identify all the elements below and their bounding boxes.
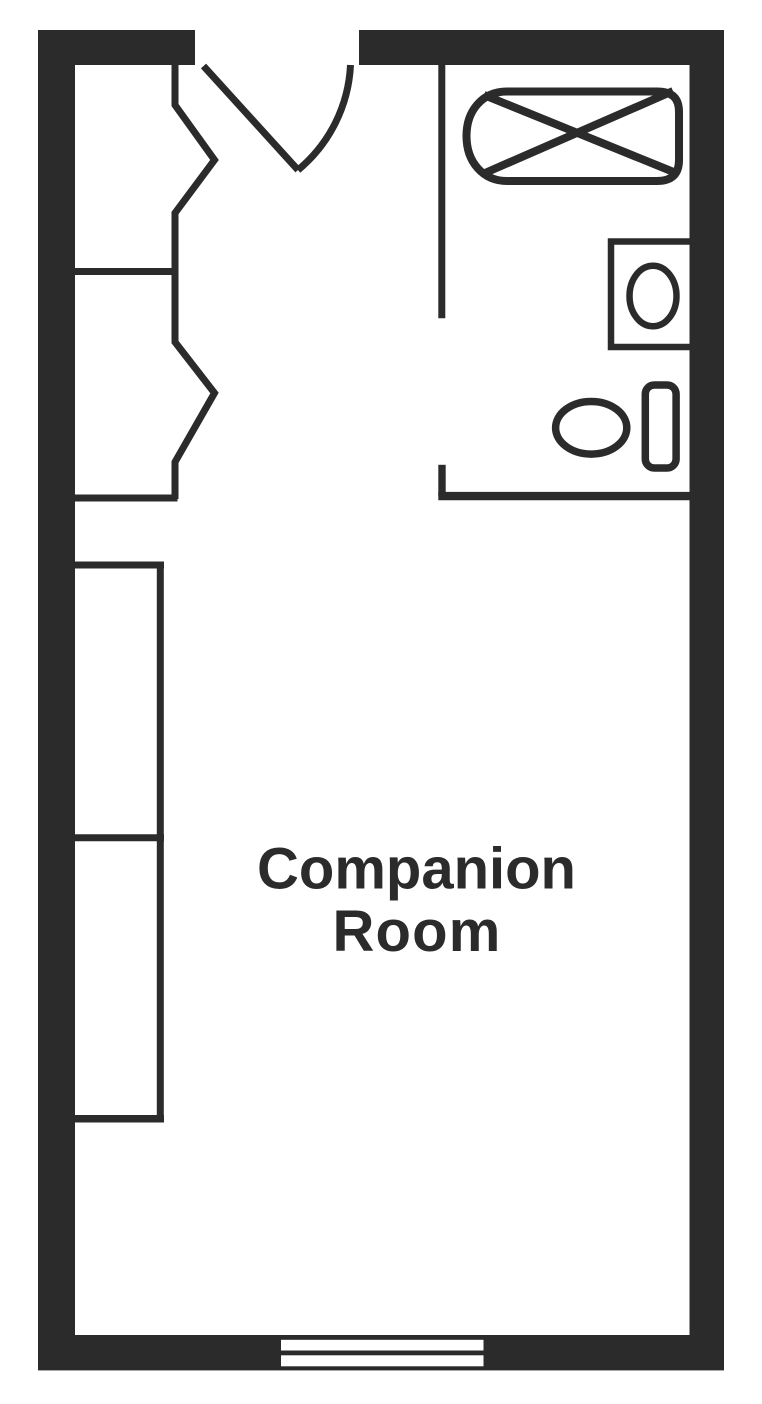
svg-text:Companion: Companion [257,837,576,902]
svg-text:Room: Room [332,899,501,964]
